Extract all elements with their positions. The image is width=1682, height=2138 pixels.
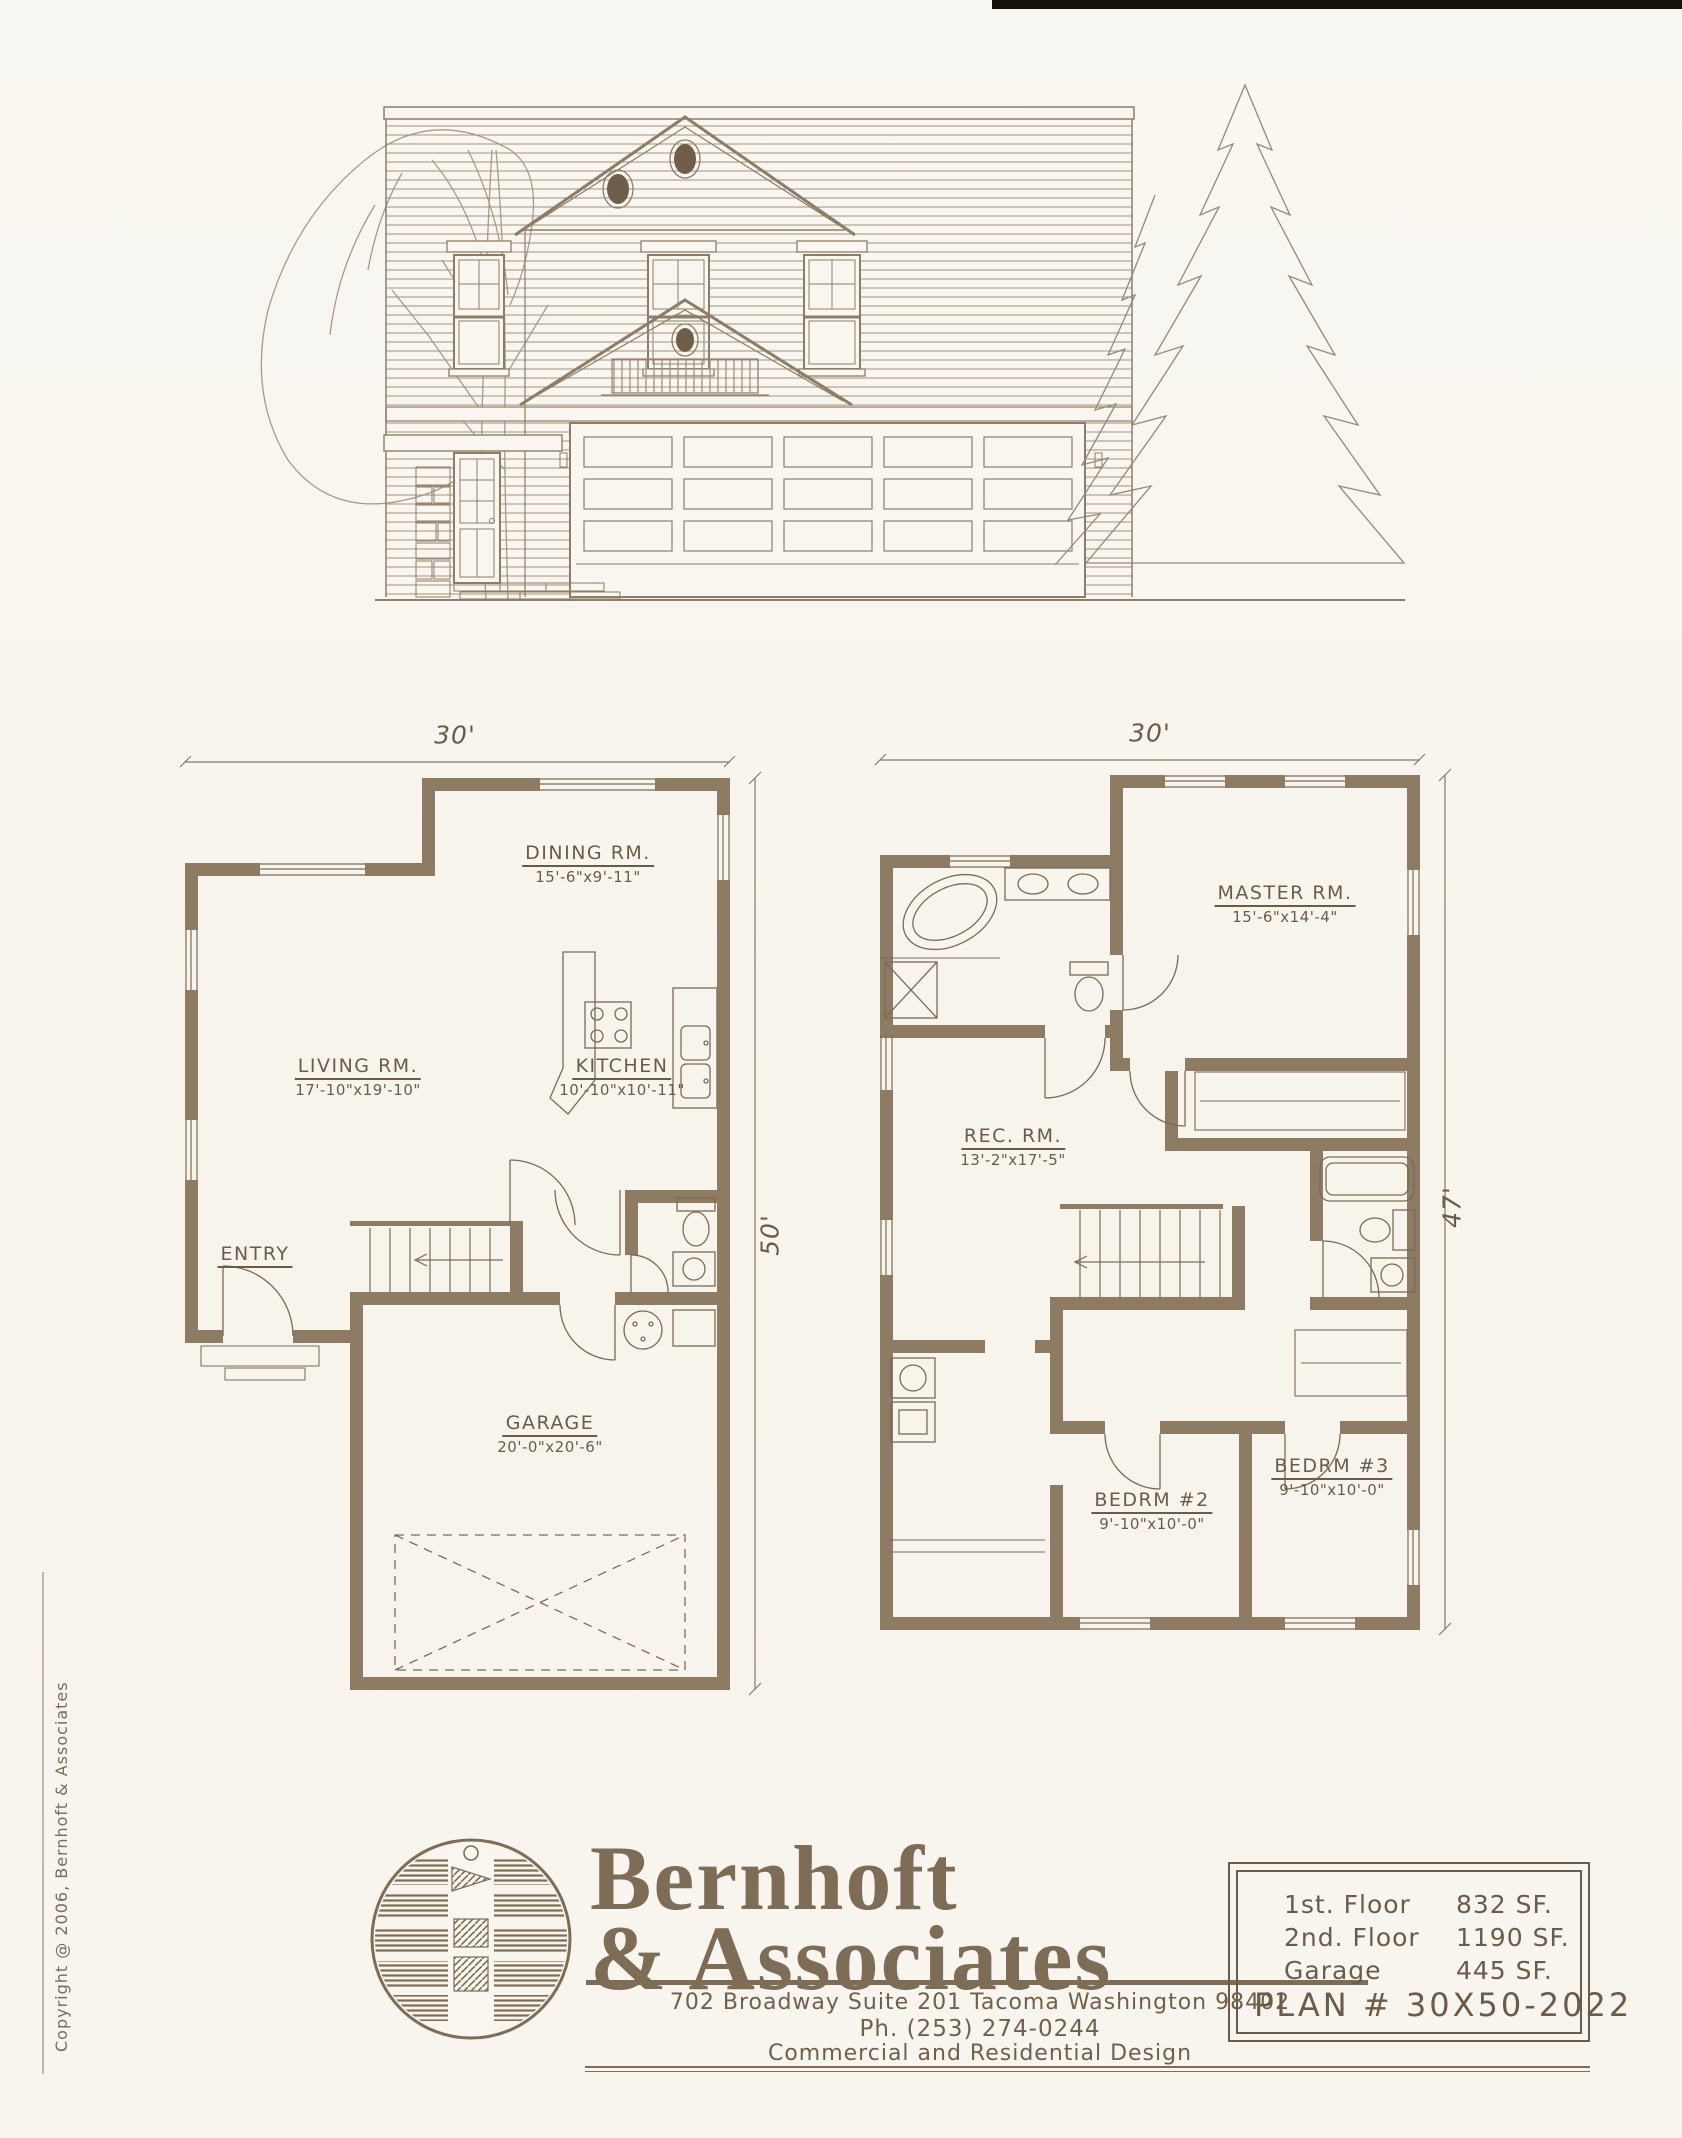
sf-laundry-appliances	[891, 1358, 935, 1442]
garage-door	[560, 423, 1102, 597]
table-row: 2nd. Floor 1190 SF.	[1284, 1921, 1580, 1954]
room-label-dining: DINING RM. 15'-6"x9'-11"	[522, 842, 654, 886]
ff-height-dim: 50'	[756, 1214, 785, 1256]
window-left	[447, 241, 511, 376]
bottom-rule-2	[585, 2071, 1590, 2072]
room-label-rec: REC. RM. 13'-2"x17'-5"	[960, 1125, 1066, 1169]
room-label-bedrm3: BEDRM #3 9'-10"x10'-0"	[1271, 1455, 1392, 1499]
room-label-living: LIVING RM. 17'-10"x19'-10"	[295, 1055, 421, 1099]
table-row: 1st. Floor 832 SF.	[1284, 1888, 1580, 1921]
plan-number: PLAN # 30X50-2022	[1254, 1986, 1632, 2024]
ff-garage-brace	[395, 1535, 685, 1670]
company-name-line2: & Associates	[590, 1918, 1112, 1998]
plan-info-table: 1st. Floor 832 SF. 2nd. Floor 1190 SF. G…	[1228, 1862, 1590, 2042]
sf-doors	[1045, 955, 1379, 1489]
sf-hall-shelves	[887, 1540, 1045, 1552]
sf-stairs	[1075, 1210, 1220, 1297]
bottom-rule-1	[585, 2066, 1590, 2068]
room-label-garage: GARAGE 20'-0"x20'-6"	[497, 1412, 603, 1456]
company-logo	[356, 1833, 591, 2048]
first-floor-plan	[165, 740, 805, 1720]
gable-vent-icon	[607, 174, 629, 204]
scan-artifact-bar	[992, 0, 1682, 9]
blueprint-page: 30' 50' 30' 47' DINING RM. 15'-6"x9'-11"…	[0, 0, 1682, 2138]
gable-vent-icon	[676, 328, 694, 352]
ff-laundry-appliances	[624, 1310, 715, 1349]
window-right	[797, 241, 867, 376]
sf-master-closet	[1195, 1072, 1405, 1130]
sf-bed3-closet	[1295, 1330, 1407, 1396]
company-name: Bernhoft & Associates	[590, 1838, 1112, 1998]
ff-stairs	[370, 1228, 503, 1292]
company-name-line1: Bernhoft	[590, 1838, 1112, 1918]
room-label-bedrm2: BEDRM #2 9'-10"x10'-0"	[1091, 1489, 1212, 1533]
sheet-edge-line	[42, 1572, 44, 2074]
sf-master-bath-fixtures	[880, 859, 1110, 1018]
house-elevation-drawing	[170, 55, 1410, 615]
sf-hall-bath-fixtures	[1320, 1157, 1415, 1292]
gable-vent-icon	[674, 144, 696, 174]
ff-porch	[201, 1346, 319, 1380]
room-label-entry: ENTRY	[218, 1243, 293, 1268]
sf-width-dim: 30'	[1129, 719, 1171, 748]
ff-windows	[186, 779, 729, 1180]
company-tagline: Commercial and Residential Design	[560, 2041, 1400, 2066]
copyright-text: Copyright @ 2006, Bernhoft & Associates	[52, 1607, 71, 2052]
pine-large	[1086, 85, 1404, 563]
ff-walls	[185, 778, 730, 1690]
table-row: Garage 445 SF.	[1284, 1954, 1580, 1987]
ff-powder-fixtures	[673, 1198, 715, 1286]
ff-width-dim: 30'	[434, 721, 476, 750]
room-label-kitchen: KITCHEN 10'-10"x10'-11"	[559, 1055, 685, 1099]
sf-height-dim: 47'	[1438, 1186, 1467, 1228]
room-label-master: MASTER RM. 15'-6"x14'-4"	[1215, 882, 1356, 926]
